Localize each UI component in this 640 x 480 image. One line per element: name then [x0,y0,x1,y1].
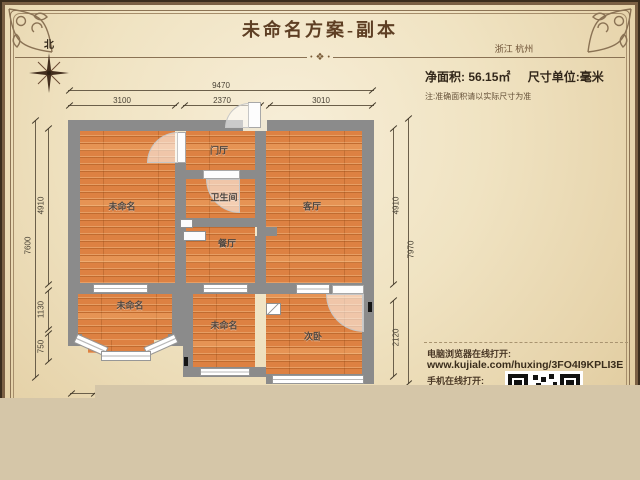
dim-label: 3010 [301,96,341,105]
dim-label: 7970 [407,230,416,270]
dim-line [68,105,177,106]
bedroom-door-leaf [332,285,364,294]
unit-label: 尺寸单位:毫米 [528,70,604,84]
dim-label: 750 [37,327,46,367]
north-label: 北 [38,36,60,51]
dim-line [68,90,374,91]
area-label: 净面积: [425,70,465,84]
dim-line [48,333,49,362]
dim-label: 7600 [24,226,33,266]
wall [186,218,266,227]
bay-window [101,351,151,361]
fixture-icon [183,231,206,241]
room-label: 餐厅 [218,237,236,250]
room-label: 卫生间 [210,191,237,204]
dim-line [70,393,96,394]
window [296,284,330,294]
floorplan-poster: 未命名方案-副本 • ❖ • 浙江 杭州 净面积: 56.15㎡ 尺寸单位:毫米… [0,0,640,480]
window [272,375,364,384]
area-note: 注:准确面积请以实际尺寸为准 [425,91,531,102]
divider-dot: • [310,53,312,62]
area-line: 净面积: 56.15㎡ 尺寸单位:毫米 [425,68,604,85]
footer-divider [424,342,628,343]
wall-stub [257,227,277,236]
door-stop-mark [184,357,188,366]
wall [68,131,80,294]
wall [68,120,374,131]
room-label: 未命名 [116,299,143,312]
dim-label: 4910 [37,186,46,226]
plan-url: www.kujiale.com/huxing/3FO4I9KPLI3E [427,359,623,371]
dim-label: 3100 [102,96,142,105]
dim-label: 4910 [392,186,401,226]
location-label: 浙江 杭州 [454,42,574,55]
divider-dot: • [327,53,329,62]
page-title: 未命名方案-副本 [0,16,640,42]
dim-label: 9470 [201,81,241,90]
dim-line [48,128,49,285]
dim-label: 2120 [392,318,401,358]
room-label: 门厅 [210,144,228,157]
wall [255,120,266,227]
window [203,284,248,293]
room-label: 次卧 [304,330,322,343]
door-stop-mark [368,302,372,312]
dim-label: 2370 [202,96,242,105]
cropped-area-overlay [0,398,640,480]
window [93,284,148,293]
wall [362,120,374,384]
room-label: 客厅 [303,200,321,213]
area-value: 56.15㎡ [468,70,510,84]
dim-line [48,290,49,330]
room-label: 未命名 [210,319,237,332]
dim-line [268,105,374,106]
wall [255,236,266,283]
bathroom-door-leaf [203,170,240,179]
window [200,368,250,376]
fixture-icon [180,219,193,228]
dim-label: 1130 [37,290,46,330]
air-conditioner-icon [266,303,281,315]
entry-door-leaf [248,102,261,128]
room-label: 未命名 [108,200,135,213]
door-leaf [177,132,186,163]
divider-ornament-icon: ❖ [316,53,325,62]
compass-rose-icon [28,52,70,94]
